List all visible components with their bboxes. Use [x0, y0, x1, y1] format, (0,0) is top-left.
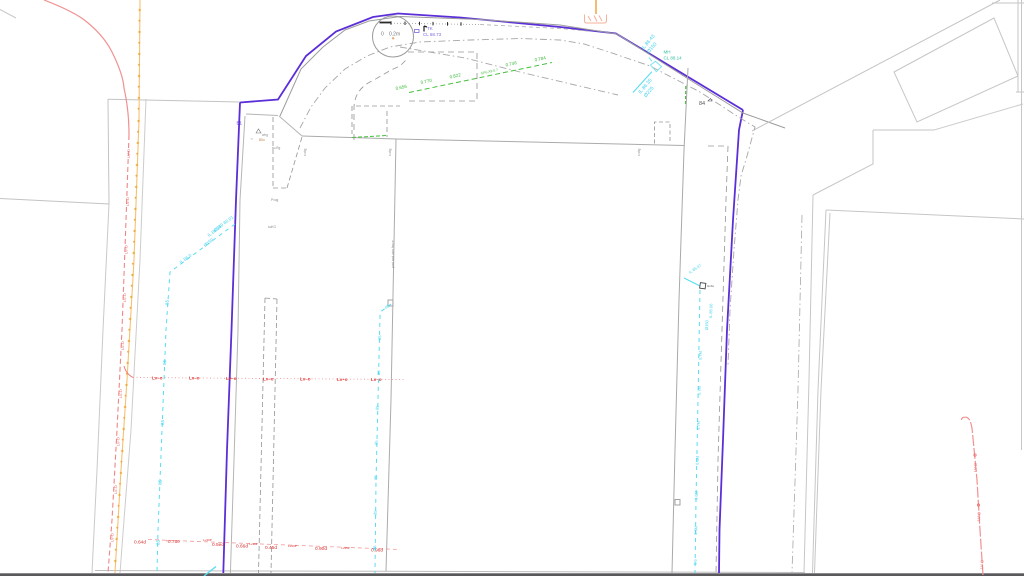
svg-text:0.45d: 0.45d: [265, 545, 277, 551]
svg-text:LV-O: LV-O: [124, 245, 129, 254]
svg-text:0.7M: 0.7M: [696, 421, 701, 430]
svg-text:*0.75e: *0.75e: [166, 539, 180, 545]
svg-text:post and wire fence: post and wire fence: [391, 240, 395, 268]
svg-text:85: 85: [156, 539, 161, 545]
svg-text:LV-O: LV-O: [118, 389, 123, 398]
svg-text:LV-O: LV-O: [976, 512, 982, 521]
svg-text:s.vkg: s.vkg: [388, 148, 392, 156]
svg-text:0.7M: 0.7M: [698, 351, 703, 360]
svg-text:0.6M: 0.6M: [695, 456, 700, 465]
svg-text:MH: MH: [664, 50, 671, 55]
svg-text:B1: B1: [237, 121, 243, 126]
svg-text:s.vkg: s.vkg: [637, 148, 641, 156]
svg-text:Lv–o: Lv–o: [337, 377, 348, 382]
svg-text:0.6: 0.6: [693, 559, 698, 566]
svg-text:Pvug: Pvug: [271, 198, 278, 202]
svg-text:0.2m: 0.2m: [389, 32, 400, 38]
svg-text:LV-O: LV-O: [113, 485, 118, 494]
svg-text:Gvbx: Gvbx: [707, 284, 715, 288]
svg-text:L+90P: L+90P: [203, 538, 212, 542]
svg-text:suKG: suKG: [268, 225, 276, 229]
svg-text:0.66d: 0.66d: [236, 544, 248, 550]
svg-text:L+90P: L+90P: [341, 546, 350, 550]
svg-text:0.6M: 0.6M: [693, 526, 698, 535]
svg-text:Lv–o: Lv–o: [226, 376, 237, 381]
svg-text:85: 85: [162, 359, 167, 365]
svg-text:85: 85: [158, 479, 163, 485]
svg-text:Lv–o: Lv–o: [371, 377, 382, 382]
svg-text:Ø150: Ø150: [704, 319, 709, 330]
svg-text:B5u: B5u: [259, 138, 265, 142]
svg-text:s.vkg: s.vkg: [303, 148, 307, 156]
svg-text:L+90P: L+90P: [288, 544, 297, 548]
svg-text:Lv–o: Lv–o: [189, 376, 200, 381]
svg-text:LV-O: LV-O: [122, 293, 127, 302]
svg-text:LV-O: LV-O: [116, 437, 121, 446]
svg-text:0: 0: [381, 32, 384, 38]
svg-text:Lv–o: Lv–o: [152, 376, 163, 381]
svg-text:CL 88.14: CL 88.14: [664, 56, 683, 61]
svg-text:LV-O: LV-O: [973, 463, 979, 472]
svg-text:0.7M: 0.7M: [697, 386, 702, 395]
svg-text:whg: whg: [262, 133, 268, 137]
svg-text:0.6M: 0.6M: [694, 491, 699, 500]
svg-text:CL 68.73: CL 68.73: [423, 32, 442, 37]
svg-text:Lv–o: Lv–o: [300, 377, 311, 382]
svg-text:85: 85: [165, 299, 170, 305]
svg-text:su.Rg: su.Rg: [272, 146, 281, 150]
svg-text:LV-O: LV-O: [120, 341, 125, 350]
svg-text:85: 85: [160, 419, 165, 425]
svg-text:TK: TK: [427, 26, 433, 31]
svg-text:0.64d: 0.64d: [134, 540, 146, 546]
svg-text:84: 84: [699, 101, 705, 107]
svg-text:L+90P: L+90P: [249, 542, 258, 546]
svg-text:LV-O: LV-O: [126, 149, 131, 158]
svg-text:Lv–o: Lv–o: [263, 376, 274, 381]
svg-text:LV-O: LV-O: [110, 533, 115, 542]
svg-text:LV-O: LV-O: [979, 560, 985, 569]
svg-text:0.5ed: 0.5ed: [212, 542, 224, 548]
svg-text:LV-O: LV-O: [125, 197, 130, 206]
svg-text:0.90d: 0.90d: [315, 546, 327, 552]
svg-text:IL 85.06: IL 85.06: [708, 303, 714, 318]
